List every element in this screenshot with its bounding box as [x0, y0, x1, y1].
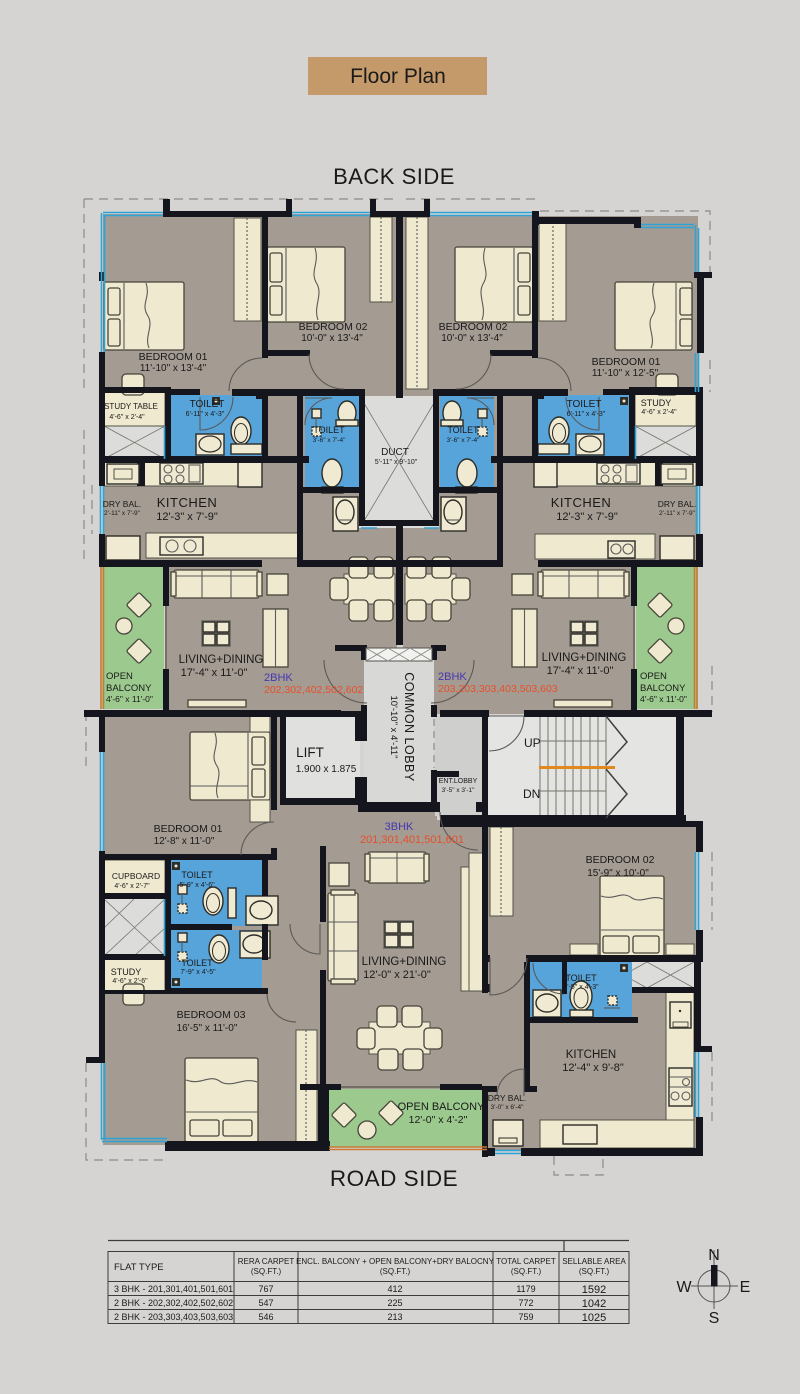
svg-text:ENCL. BALCONY + OPEN BALCONY+D: ENCL. BALCONY + OPEN BALCONY+DRY BALOCNY [296, 1257, 495, 1266]
svg-text:10'-0" x 13'-4": 10'-0" x 13'-4" [441, 333, 503, 344]
svg-text:3 BHK - 201,301,401,501,601: 3 BHK - 201,301,401,501,601 [114, 1284, 233, 1294]
svg-text:RERA CARPET: RERA CARPET [238, 1257, 295, 1266]
svg-text:17'-4" x 11'-0": 17'-4" x 11'-0" [181, 667, 248, 679]
svg-text:7'-9" x 4'-5": 7'-9" x 4'-5" [180, 969, 216, 976]
svg-text:DN: DN [523, 787, 540, 801]
svg-text:2 BHK - 202,302,402,502,602: 2 BHK - 202,302,402,502,602 [114, 1298, 233, 1308]
svg-text:547: 547 [258, 1298, 273, 1308]
svg-text:(SQ.FT.): (SQ.FT.) [380, 1267, 411, 1276]
svg-text:2BHK: 2BHK [264, 672, 293, 684]
svg-text:ROAD SIDE: ROAD SIDE [330, 1166, 458, 1191]
svg-text:6'-11" x 4'-3": 6'-11" x 4'-3" [567, 411, 606, 418]
svg-text:N: N [708, 1247, 720, 1264]
svg-text:STUDY: STUDY [111, 967, 142, 977]
svg-text:17'-4" x 11'-0": 17'-4" x 11'-0" [547, 665, 614, 677]
svg-text:1042: 1042 [582, 1298, 606, 1310]
svg-text:5'-9" x 4'-6": 5'-9" x 4'-6" [179, 882, 215, 889]
svg-text:16'-5" x 11'-0": 16'-5" x 11'-0" [177, 1023, 238, 1034]
svg-text:BEDROOM 01: BEDROOM 01 [592, 356, 661, 368]
svg-text:10'-10" x 4'-11": 10'-10" x 4'-11" [388, 695, 399, 758]
svg-text:BEDROOM 02: BEDROOM 02 [586, 854, 655, 866]
svg-text:15'-9" x 10'-0": 15'-9" x 10'-0" [587, 868, 649, 879]
svg-text:BEDROOM 02: BEDROOM 02 [299, 321, 368, 333]
svg-text:BALCONY: BALCONY [106, 683, 152, 694]
svg-text:LIVING+DINING: LIVING+DINING [362, 956, 447, 968]
svg-text:LIVING+DINING: LIVING+DINING [179, 654, 264, 666]
svg-text:OPEN BALCONY: OPEN BALCONY [398, 1101, 485, 1113]
svg-text:UP: UP [524, 736, 541, 750]
svg-text:KITCHEN: KITCHEN [566, 1049, 616, 1061]
svg-text:TOTAL CARPET: TOTAL CARPET [496, 1257, 556, 1266]
svg-text:11'-10" x 13'-4": 11'-10" x 13'-4" [140, 363, 207, 374]
svg-text:3BHK: 3BHK [385, 821, 414, 833]
svg-text:LIVING+DINING: LIVING+DINING [542, 652, 627, 664]
svg-text:225: 225 [387, 1298, 402, 1308]
svg-text:DRY BAL.: DRY BAL. [103, 499, 141, 509]
svg-text:TOILET: TOILET [313, 425, 345, 435]
svg-text:546: 546 [258, 1312, 273, 1322]
svg-text:S: S [709, 1310, 720, 1327]
svg-text:BEDROOM 03: BEDROOM 03 [177, 1009, 246, 1021]
svg-text:OPEN: OPEN [640, 671, 667, 682]
svg-text:Floor Plan: Floor Plan [350, 65, 446, 88]
svg-text:12'-0" x 21'-0": 12'-0" x 21'-0" [363, 969, 431, 981]
svg-text:12'-3" x 7'-9": 12'-3" x 7'-9" [556, 511, 618, 523]
svg-text:TOILET: TOILET [565, 973, 597, 983]
svg-text:BALCONY: BALCONY [640, 683, 686, 694]
svg-text:12'-8" x 11'-0": 12'-8" x 11'-0" [154, 836, 215, 847]
svg-text:TOILET: TOILET [447, 425, 479, 435]
svg-text:4'-6" x 2'-7": 4'-6" x 2'-7" [114, 883, 150, 890]
svg-text:OPEN: OPEN [106, 671, 133, 682]
svg-text:4'-6" x 11'-0": 4'-6" x 11'-0" [106, 694, 153, 704]
svg-text:12'-4" x 9'-8": 12'-4" x 9'-8" [562, 1062, 624, 1074]
svg-text:STUDY TABLE: STUDY TABLE [104, 402, 158, 411]
svg-text:SELLABLE AREA: SELLABLE AREA [562, 1257, 626, 1266]
svg-text:TOILET: TOILET [181, 870, 213, 880]
svg-text:2 BHK - 203,303,403,503,603: 2 BHK - 203,303,403,503,603 [114, 1312, 233, 1322]
svg-text:(SQ.FT.): (SQ.FT.) [251, 1267, 282, 1276]
svg-text:12'-0" x 4'-2": 12'-0" x 4'-2" [409, 1114, 468, 1126]
svg-text:7'-5" x 4'-3": 7'-5" x 4'-3" [563, 984, 599, 991]
svg-text:1592: 1592 [582, 1284, 606, 1296]
svg-text:KITCHEN: KITCHEN [551, 495, 612, 510]
svg-text:TOILET: TOILET [567, 399, 602, 410]
svg-text:CUPBOARD: CUPBOARD [112, 871, 160, 881]
svg-text:3'-0" x 6'-4": 3'-0" x 6'-4" [491, 1104, 524, 1111]
svg-text:2BHK: 2BHK [438, 671, 467, 683]
svg-text:4'-6" x 2'-4": 4'-6" x 2'-4" [641, 409, 677, 416]
svg-text:6'-11" x 4'-3": 6'-11" x 4'-3" [186, 411, 225, 418]
svg-text:12'-3" x 7'-9": 12'-3" x 7'-9" [156, 511, 218, 523]
svg-text:772: 772 [518, 1298, 533, 1308]
svg-text:1179: 1179 [516, 1284, 535, 1294]
svg-text:4'-6" x 2'-6": 4'-6" x 2'-6" [112, 978, 148, 985]
svg-text:DRY BAL.: DRY BAL. [488, 1093, 526, 1103]
svg-text:3'-6" x 7'-4": 3'-6" x 7'-4" [313, 437, 346, 444]
svg-text:767: 767 [258, 1284, 273, 1294]
svg-text:(SQ.FT.): (SQ.FT.) [511, 1267, 542, 1276]
svg-text:(SQ.FT.): (SQ.FT.) [579, 1267, 610, 1276]
svg-text:213: 213 [387, 1312, 402, 1322]
svg-text:11'-10" x 12'-5": 11'-10" x 12'-5" [592, 368, 659, 379]
svg-text:1.900 x 1.875: 1.900 x 1.875 [296, 764, 357, 775]
svg-text:10'-0" x 13'-4": 10'-0" x 13'-4" [301, 333, 363, 344]
svg-text:BEDROOM 01: BEDROOM 01 [154, 823, 223, 835]
svg-text:1025: 1025 [582, 1312, 606, 1324]
svg-text:2'-11" x 7'-9": 2'-11" x 7'-9" [104, 510, 141, 517]
svg-text:W: W [676, 1279, 692, 1296]
svg-text:LIFT: LIFT [296, 745, 324, 760]
svg-text:DRY BAL.: DRY BAL. [658, 499, 696, 509]
svg-text:BACK SIDE: BACK SIDE [333, 164, 455, 189]
svg-text:412: 412 [387, 1284, 402, 1294]
svg-text:3'-5" x 3'-1": 3'-5" x 3'-1" [442, 787, 475, 794]
svg-text:COMMON LOBBY: COMMON LOBBY [402, 672, 416, 782]
svg-text:4'-6" x 2'-4": 4'-6" x 2'-4" [109, 414, 145, 421]
svg-text:759: 759 [518, 1312, 533, 1322]
svg-text:TOILET: TOILET [181, 958, 213, 968]
svg-text:4'-6" x 11'-0": 4'-6" x 11'-0" [640, 694, 687, 704]
svg-text:5'-11" x 9'-10": 5'-11" x 9'-10" [375, 459, 418, 466]
svg-text:203,203,303,403,503,603: 203,203,303,403,503,603 [438, 683, 558, 695]
svg-text:FLAT TYPE: FLAT TYPE [114, 1262, 164, 1273]
svg-text:E: E [740, 1279, 751, 1296]
svg-text:STUDY: STUDY [641, 398, 672, 408]
svg-text:KITCHEN: KITCHEN [157, 495, 218, 510]
svg-text:202,302,402,502,602: 202,302,402,502,602 [264, 684, 363, 696]
svg-text:DUCT: DUCT [381, 447, 409, 458]
svg-text:3'-6" x 7'-4": 3'-6" x 7'-4" [447, 437, 480, 444]
svg-text:ENT.LOBBY: ENT.LOBBY [439, 778, 478, 785]
svg-text:201,301,401,501,601: 201,301,401,501,601 [360, 834, 464, 846]
svg-text:BEDROOM 02: BEDROOM 02 [439, 321, 508, 333]
svg-text:BEDROOM 01: BEDROOM 01 [139, 351, 208, 363]
svg-text:TOILET: TOILET [190, 399, 225, 410]
svg-text:2'-11" x 7'-9": 2'-11" x 7'-9" [659, 510, 696, 517]
